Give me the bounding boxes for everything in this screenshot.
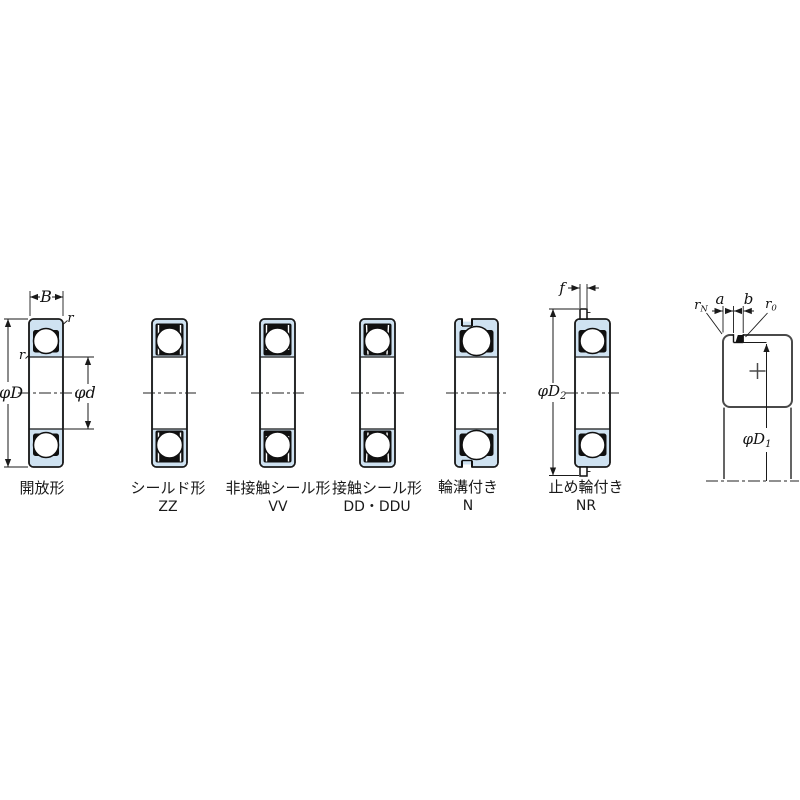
ball	[157, 432, 183, 458]
dim-groove-diameter: φD1	[742, 343, 771, 482]
ball	[462, 431, 491, 460]
dim-width-B: B	[30, 287, 63, 316]
bearing-snap-ring	[566, 309, 619, 476]
ball	[365, 432, 391, 458]
caption-open: 開放形	[19, 479, 64, 497]
dim-label-r0: r0	[765, 297, 777, 314]
ball	[34, 433, 59, 458]
dim-label-phid: φd	[74, 383, 95, 402]
caption-ring-groove: 輪溝付き	[438, 478, 498, 496]
bearing-contact-seal	[351, 319, 404, 467]
ball	[580, 433, 605, 458]
caption-code-dd: DD・DDU	[343, 499, 410, 515]
dim-chamfer-r-left: r	[19, 348, 29, 363]
dim-label-B: B	[39, 287, 52, 306]
dim-label-phiD1: φD1	[743, 430, 772, 450]
dim-chamfer-r-top: r	[64, 311, 75, 326]
snap-ring-top	[580, 309, 587, 319]
bearing-ring-groove	[446, 318, 507, 469]
dim-label-phiD: φD	[0, 383, 23, 402]
dim-groove-b: b	[734, 290, 754, 333]
dim-label-r: r	[19, 348, 26, 363]
ball	[462, 327, 491, 356]
bearing-open	[18, 319, 77, 467]
caption-code-n: N	[463, 498, 473, 514]
caption-snap-ring: 止め輪付き	[548, 478, 623, 496]
dim-label-b: b	[744, 290, 754, 308]
dim-label-r: r	[67, 311, 74, 326]
dim-snap-ring-width-f: f	[558, 279, 599, 308]
captions: 開放形 シールド形 ZZ 非接触シール形 VV 接触シール形 DD・DDU 輪溝…	[19, 478, 623, 515]
caption-non-contact-seal: 非接触シール形	[225, 479, 330, 497]
ball	[265, 432, 291, 458]
ball	[157, 328, 183, 354]
caption-code-vv: VV	[268, 499, 288, 515]
bearing-diagram-svg: B φD φd r r	[0, 0, 800, 800]
dim-snap-ring-diameter: φD2	[538, 309, 579, 476]
ball	[34, 329, 59, 354]
caption-contact-seal: 接触シール形	[332, 479, 422, 497]
dim-label-rN: rN	[694, 298, 708, 315]
dim-label-f: f	[558, 279, 567, 297]
caption-code-nr: NR	[576, 498, 596, 514]
dim-groove-a: a	[712, 290, 734, 333]
snap-ring-bottom	[580, 467, 587, 476]
ball	[365, 328, 391, 354]
ball	[580, 329, 605, 354]
caption-code-zz: ZZ	[158, 499, 177, 515]
dim-label-phiD2: φD2	[538, 382, 567, 402]
bearing-types-figure: B φD φd r r	[0, 0, 800, 800]
groove-detail-view: a b rN r0 φD1	[694, 290, 799, 481]
caption-shielded: シールド形	[130, 479, 205, 497]
dim-label-a: a	[716, 290, 725, 308]
ball	[265, 328, 291, 354]
bearing-non-contact-seal	[251, 319, 304, 467]
bearing-shielded	[143, 319, 196, 467]
